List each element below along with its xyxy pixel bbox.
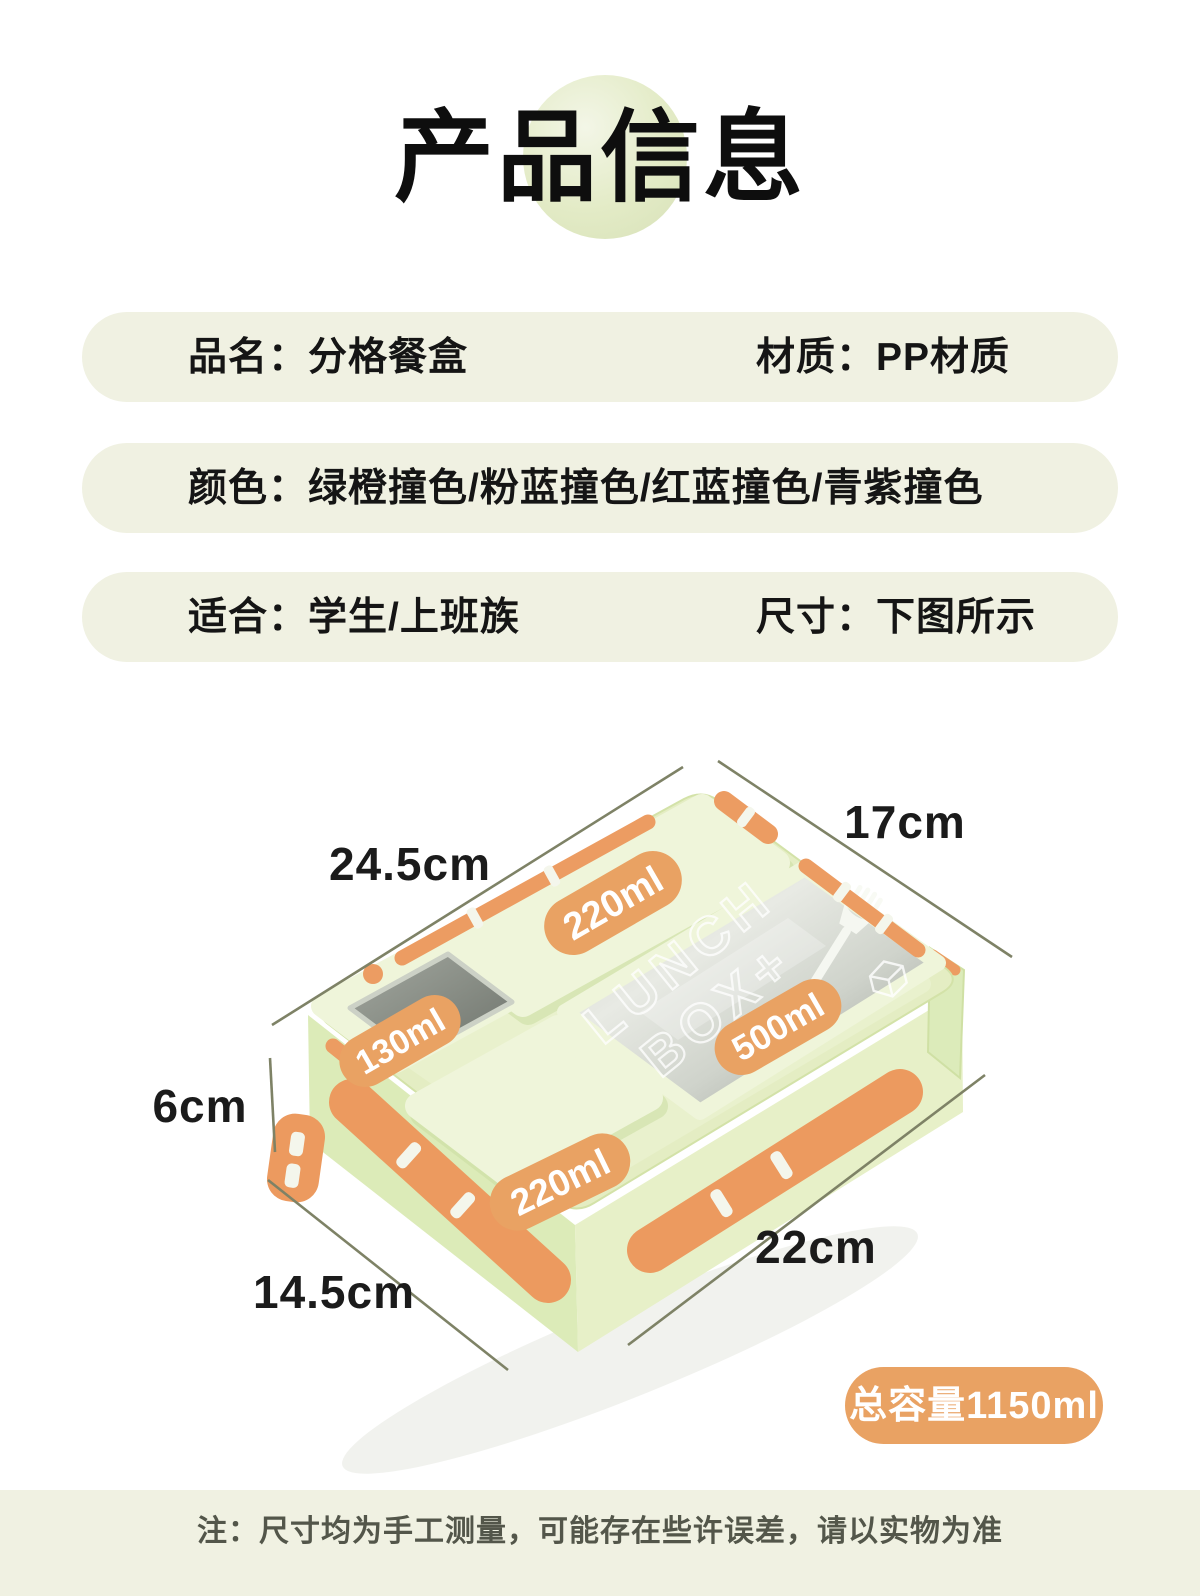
spec-bar-name-material: 品名：分格餐盒 材质：PP材质 bbox=[82, 312, 1118, 402]
spec-colors: 颜色：绿橙撞色/粉蓝撞色/红蓝撞色/青紫撞色 bbox=[188, 443, 984, 533]
spec-bar-suit-size: 适合：学生/上班族 尺寸：下图所示 bbox=[82, 572, 1118, 662]
spec-suitable-for: 适合：学生/上班族 bbox=[188, 572, 520, 662]
dim-label-top-depth: 17cm bbox=[844, 796, 966, 848]
product-info-page: 产品信息 品名：分格餐盒 材质：PP材质 颜色：绿橙撞色/粉蓝撞色/红蓝撞色/青… bbox=[0, 0, 1200, 1596]
spec-product-name: 品名：分格餐盒 bbox=[188, 312, 468, 402]
footer-note: 注：尺寸均为手工测量，可能存在些许误差，请以实物为准 bbox=[0, 1506, 1200, 1550]
dim-label-top-width: 24.5cm bbox=[329, 838, 491, 890]
dim-label-height: 6cm bbox=[152, 1080, 247, 1132]
dim-label-bottom-depth: 22cm bbox=[755, 1221, 877, 1273]
page-title: 产品信息 bbox=[0, 98, 1200, 218]
total-capacity-badge: 总容量1150ml bbox=[845, 1367, 1103, 1444]
footer-strip: 注：尺寸均为手工测量，可能存在些许误差，请以实物为准 bbox=[0, 1490, 1200, 1596]
spec-material: 材质：PP材质 bbox=[756, 312, 1010, 402]
spec-size: 尺寸：下图所示 bbox=[756, 572, 1036, 662]
spec-bar-colors: 颜色：绿橙撞色/粉蓝撞色/红蓝撞色/青紫撞色 bbox=[82, 443, 1118, 533]
dim-label-bottom-width: 14.5cm bbox=[253, 1266, 415, 1318]
